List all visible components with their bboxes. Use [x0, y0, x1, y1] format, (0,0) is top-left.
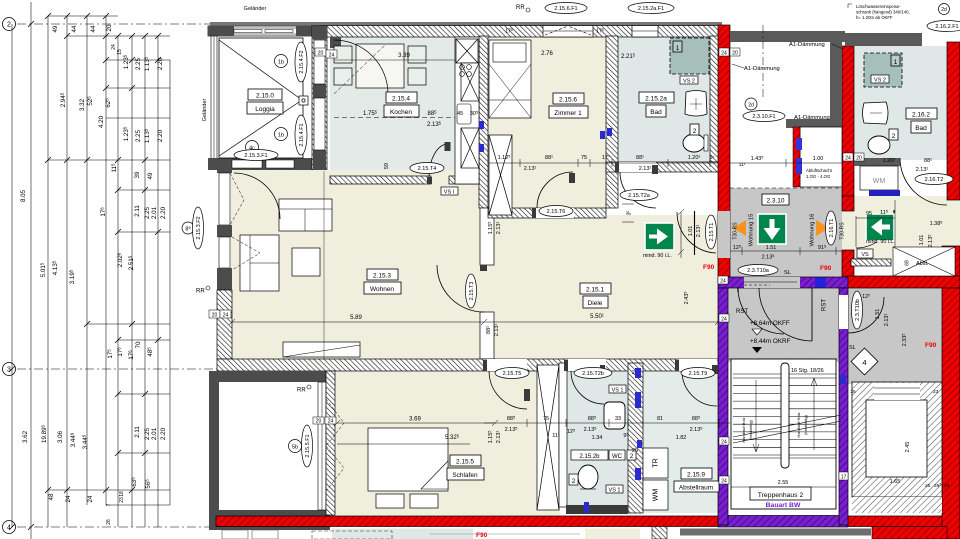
svg-text:3.62: 3.62: [22, 430, 29, 443]
svg-text:F90: F90: [925, 342, 937, 349]
svg-text:24: 24: [223, 313, 229, 319]
svg-text:3: 3: [7, 366, 11, 373]
svg-text:T30-RS: T30-RS: [840, 222, 846, 240]
svg-text:1: 1: [676, 45, 680, 52]
svg-text:95: 95: [866, 211, 872, 217]
svg-text:2.25: 2.25: [135, 129, 142, 142]
svg-text:88¹: 88¹: [924, 158, 932, 164]
svg-text:44: 44: [71, 25, 78, 32]
svg-text:Handlauf Holz: Handlauf Holz: [741, 417, 746, 442]
svg-text:Kochen: Kochen: [390, 109, 412, 116]
svg-text:20: 20: [316, 419, 322, 425]
svg-text:2.16.T2: 2.16.T2: [925, 177, 944, 183]
svg-text:2.15.4.F1: 2.15.4.F1: [299, 123, 305, 146]
svg-text:TR: TR: [653, 458, 660, 467]
svg-text:2.13¹: 2.13¹: [639, 166, 652, 172]
svg-text:2.25: 2.25: [144, 206, 151, 219]
svg-text:1.01: 1.01: [919, 235, 925, 246]
svg-text:VS 1: VS 1: [612, 388, 624, 394]
svg-text:mind. 90 i.L.: mind. 90 i.L.: [643, 253, 672, 259]
svg-text:2.3.T10b: 2.3.T10b: [855, 299, 861, 321]
svg-text:88¹: 88¹: [636, 155, 644, 161]
svg-text:33: 33: [615, 416, 621, 422]
svg-text:7: 7: [106, 503, 112, 506]
svg-text:20: 20: [212, 313, 218, 319]
svg-text:WM: WM: [873, 178, 886, 185]
svg-text:Treppenhaus 2: Treppenhaus 2: [758, 492, 804, 499]
svg-text:Loggia: Loggia: [255, 106, 275, 113]
svg-text:49: 49: [52, 25, 59, 32]
svg-text:Abluftschacht: Abluftschacht: [806, 168, 833, 173]
svg-text:1b: 1b: [278, 59, 284, 65]
svg-text:24: 24: [111, 44, 117, 50]
svg-text:23: 23: [119, 497, 125, 503]
svg-text:2.20: 2.20: [157, 129, 164, 142]
svg-text:44: 44: [90, 25, 97, 32]
svg-text:Wohnung 15: Wohnung 15: [749, 214, 755, 247]
svg-text:2.15.T2b: 2.15.T2b: [582, 371, 604, 377]
svg-text:RST: RST: [822, 299, 828, 311]
svg-text:SL: SL: [784, 270, 791, 276]
svg-text:2.15.9: 2.15.9: [687, 472, 705, 479]
svg-text:1.20¹: 1.20¹: [688, 155, 701, 161]
svg-text:88¹: 88¹: [545, 155, 553, 161]
svg-text:2.15.3: 2.15.3: [373, 273, 391, 280]
svg-text:15: 15: [117, 49, 123, 55]
svg-text:2.3.T10a: 2.3.T10a: [747, 268, 770, 274]
svg-text:Diele: Diele: [588, 300, 603, 307]
svg-text:9¹: 9¹: [710, 155, 715, 161]
svg-text:2.45: 2.45: [905, 442, 911, 453]
svg-text:Wohnen: Wohnen: [370, 286, 394, 293]
svg-text:24: 24: [721, 51, 727, 57]
svg-text:2: 2: [693, 128, 697, 135]
svg-text:23: 23: [933, 389, 939, 395]
svg-text:4.20: 4.20: [98, 115, 105, 128]
svg-text:70: 70: [135, 341, 142, 348]
svg-text:F90: F90: [820, 265, 832, 272]
svg-text:8.05: 8.05: [20, 189, 27, 202]
svg-text:49: 49: [147, 172, 154, 179]
svg-text:+8.64m OKFF: +8.64m OKFF: [750, 320, 790, 327]
svg-text:2.16.2: 2.16.2: [912, 112, 930, 119]
svg-text:2.15.4: 2.15.4: [392, 96, 410, 103]
svg-text:24: 24: [87, 495, 94, 502]
svg-text:24: 24: [845, 156, 851, 162]
svg-text:Bad: Bad: [915, 125, 927, 132]
svg-text:2.13¹: 2.13¹: [916, 167, 929, 173]
svg-text:Abstellraum: Abstellraum: [679, 485, 713, 492]
svg-text:2.15.0: 2.15.0: [256, 93, 274, 100]
svg-text:2.16.T1: 2.16.T1: [829, 219, 835, 238]
svg-text:2.15.2b: 2.15.2b: [579, 454, 600, 460]
svg-text:3.32: 3.32: [79, 98, 86, 111]
svg-text:2.16.2.F1: 2.16.2.F1: [935, 24, 958, 30]
svg-text:1.82: 1.82: [676, 435, 687, 441]
svg-text:VS 1: VS 1: [609, 488, 621, 494]
svg-text:1.34: 1.34: [592, 435, 603, 441]
svg-text:5.89: 5.89: [350, 315, 362, 321]
svg-text:26: 26: [106, 519, 112, 525]
svg-text:Löschwassereinspeise-: Löschwassereinspeise-: [856, 4, 901, 9]
svg-text:A1-Dämmung: A1-Dämmung: [744, 66, 780, 72]
svg-text:VS 2: VS 2: [874, 78, 886, 84]
svg-text:1.51: 1.51: [875, 309, 881, 320]
svg-text:RR: RR: [196, 289, 205, 295]
svg-text:1: 1: [894, 59, 898, 66]
svg-text:88¹: 88¹: [486, 326, 492, 334]
svg-text:20: 20: [856, 156, 862, 162]
svg-text:1.01: 1.01: [688, 226, 694, 237]
svg-text:2.15.1: 2.15.1: [586, 287, 604, 294]
svg-text:24: 24: [721, 479, 727, 485]
svg-text:2.13¹: 2.13¹: [496, 222, 502, 235]
svg-text:2.15.6.F1: 2.15.6.F1: [554, 6, 577, 12]
svg-text:2d: 2d: [941, 7, 947, 13]
svg-text:1.OG - 4.OG: 1.OG - 4.OG: [806, 174, 831, 179]
svg-text:1.65: 1.65: [890, 479, 901, 485]
svg-text:24: 24: [944, 483, 950, 489]
svg-text:mind. 90 i.L.: mind. 90 i.L.: [866, 239, 895, 245]
svg-text:20: 20: [318, 51, 324, 57]
svg-text:20: 20: [632, 448, 638, 454]
svg-text:75: 75: [581, 155, 587, 161]
svg-text:75: 75: [543, 416, 549, 422]
svg-text:RR: RR: [516, 5, 525, 11]
svg-text:2.13¹: 2.13¹: [696, 225, 702, 238]
svg-text:2.20: 2.20: [157, 57, 164, 70]
svg-text:2.3.10.F1: 2.3.10.F1: [752, 114, 775, 120]
svg-text:3.39: 3.39: [398, 53, 410, 59]
svg-text:25: 25: [850, 389, 856, 395]
svg-text:2.11: 2.11: [134, 205, 141, 217]
svg-text:59: 59: [384, 163, 390, 169]
svg-text:18: 18: [119, 491, 125, 497]
svg-text:2.15.3.F2: 2.15.3.F2: [196, 216, 202, 239]
svg-text:2: 2: [892, 133, 896, 140]
svg-text:2.13¹: 2.13¹: [494, 324, 500, 337]
svg-text:2.01: 2.01: [151, 427, 158, 440]
svg-text:VS: VS: [861, 252, 869, 258]
svg-text:Handlauf Holz: Handlauf Holz: [796, 412, 801, 437]
svg-text:Abst.: Abst.: [916, 261, 929, 267]
svg-text:2.15.4.F2: 2.15.4.F2: [299, 50, 305, 73]
svg-text:2.15.T2a: 2.15.T2a: [628, 193, 651, 199]
svg-text:Bad: Bad: [650, 109, 662, 116]
svg-text:F90: F90: [476, 532, 488, 539]
svg-text:Geländer: Geländer: [244, 6, 267, 12]
svg-text:17: 17: [841, 475, 847, 481]
svg-text:2.20: 2.20: [160, 206, 167, 219]
svg-text:VS 2: VS 2: [683, 79, 695, 85]
svg-text:45: 45: [457, 111, 463, 117]
svg-text:2.15.2a.F1: 2.15.2a.F1: [638, 6, 664, 12]
svg-text:5b: 5b: [292, 444, 298, 450]
svg-text:(beidseitig): (beidseitig): [803, 415, 808, 435]
svg-text:2.15.5: 2.15.5: [456, 459, 474, 466]
svg-text:(beidseitig): (beidseitig): [748, 420, 753, 440]
svg-text:16 Stg. 18/26: 16 Stg. 18/26: [791, 368, 824, 374]
svg-text:T30-RS: T30-RS: [733, 222, 739, 240]
svg-text:11¹: 11¹: [552, 433, 560, 439]
svg-text:24: 24: [65, 495, 72, 502]
svg-text:2d: 2d: [748, 102, 754, 108]
svg-text:20: 20: [106, 24, 113, 31]
svg-text:2.13¹: 2.13¹: [884, 314, 890, 327]
svg-text:Schlafen: Schlafen: [452, 472, 478, 479]
svg-text:24: 24: [721, 317, 727, 323]
svg-text:Wohnung 16: Wohnung 16: [810, 214, 816, 247]
svg-text:2.01: 2.01: [151, 206, 158, 219]
svg-text:3.06: 3.06: [57, 430, 64, 443]
svg-text:SL: SL: [849, 345, 856, 351]
svg-text:A1-Dämmung: A1-Dämmung: [789, 42, 825, 48]
svg-text:20: 20: [732, 51, 738, 57]
svg-text:2: 2: [572, 478, 576, 485]
svg-text:2.15.T9: 2.15.T9: [689, 371, 708, 377]
svg-text:2.25: 2.25: [144, 427, 151, 440]
svg-text:2.15.T6: 2.15.T6: [547, 209, 566, 215]
svg-text:3.69: 3.69: [409, 417, 421, 423]
svg-text:Bauart BW: Bauart BW: [766, 502, 801, 509]
svg-text:RR: RR: [297, 388, 306, 394]
svg-text:2.15.T1: 2.15.T1: [709, 223, 715, 242]
svg-text:24: 24: [328, 419, 334, 425]
svg-text:WM: WM: [653, 489, 660, 502]
svg-text:4: 4: [862, 358, 866, 367]
svg-text:2.76: 2.76: [541, 51, 553, 57]
svg-text:2.13¹: 2.13¹: [496, 431, 502, 444]
svg-text:69: 69: [905, 260, 911, 266]
svg-text:2.15.6: 2.15.6: [559, 97, 577, 104]
svg-text:Geländer: Geländer: [202, 99, 208, 122]
svg-text:WC: WC: [612, 454, 623, 460]
svg-text:39: 39: [134, 171, 141, 178]
svg-text:24: 24: [721, 440, 727, 446]
svg-text:2.15.2a: 2.15.2a: [645, 96, 667, 103]
svg-text:RST: RST: [736, 309, 748, 315]
svg-text:81: 81: [657, 416, 663, 422]
svg-text:24: 24: [329, 53, 335, 59]
svg-text:A1-Dämmung: A1-Dämmung: [794, 115, 830, 121]
svg-text:2: 2: [7, 21, 11, 28]
svg-text:1.51: 1.51: [766, 245, 777, 251]
svg-text:4: 4: [7, 524, 11, 531]
svg-text:25: 25: [925, 483, 931, 489]
svg-text:5.50¹: 5.50¹: [590, 314, 604, 320]
svg-text:schrank (hängend) 340/140,: schrank (hängend) 340/140,: [856, 10, 910, 15]
svg-text:2.15.5.F1: 2.15.5.F1: [305, 434, 311, 457]
svg-text:+8.44m OKRF: +8.44m OKRF: [750, 338, 791, 345]
svg-text:48: 48: [48, 493, 55, 500]
svg-text:2.20: 2.20: [160, 427, 167, 440]
svg-text:Zimmer 1: Zimmer 1: [554, 110, 582, 117]
svg-text:2.15.T4: 2.15.T4: [418, 166, 437, 172]
svg-text:1b: 1b: [278, 132, 284, 138]
svg-text:2.25: 2.25: [135, 57, 142, 70]
svg-text:2.3.10: 2.3.10: [766, 198, 784, 205]
svg-text:2.11: 2.11: [134, 426, 141, 438]
svg-text:24: 24: [720, 279, 726, 285]
svg-text:2.55: 2.55: [778, 480, 789, 486]
svg-text:2.15.T3: 2.15.T3: [469, 282, 475, 301]
svg-text:h= 1.20m ab OKFF: h= 1.20m ab OKFF: [856, 15, 893, 20]
svg-text:F90: F90: [703, 264, 715, 271]
svg-text:2.13¹: 2.13¹: [524, 166, 537, 172]
svg-text:2.15.T5: 2.15.T5: [503, 371, 522, 377]
svg-text:2.15.3.F1: 2.15.3.F1: [244, 153, 267, 159]
svg-text:1.00: 1.00: [813, 156, 824, 162]
svg-text:VS I: VS I: [444, 190, 455, 196]
